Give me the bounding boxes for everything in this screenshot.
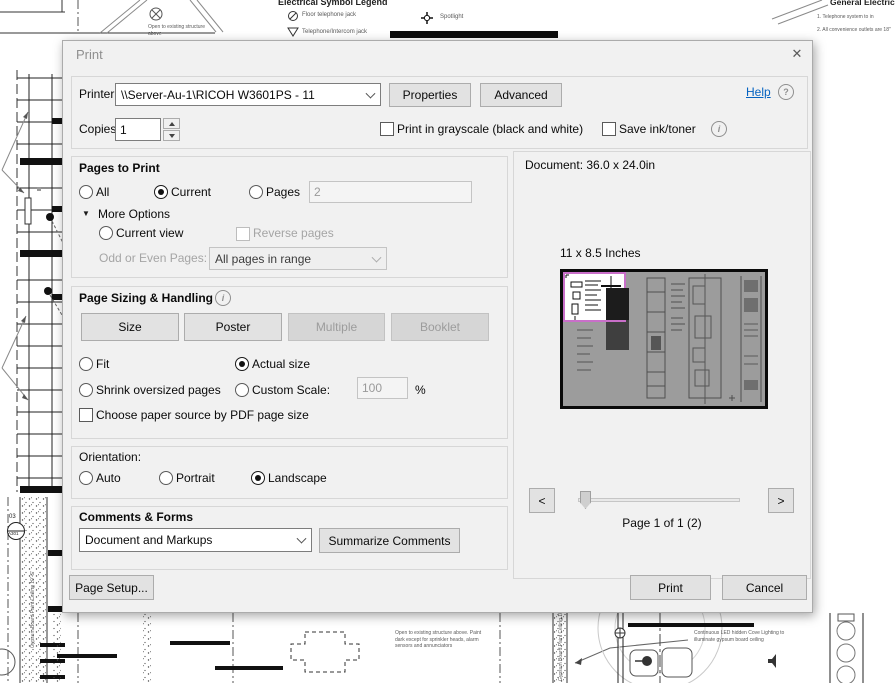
orientation-title: Orientation:: [79, 450, 141, 464]
cancel-button[interactable]: Cancel: [722, 575, 807, 600]
bg-ceiling-label: Gypsum Board Paint Ceiling 10'-6": [30, 571, 37, 648]
stepper-down-button[interactable]: [163, 130, 180, 141]
chevron-down-icon: [366, 88, 376, 98]
printer-select-value: \\Server-Au-1\RICOH W3601PS - 11: [121, 88, 315, 102]
all-radio[interactable]: [79, 185, 93, 199]
fit-radio[interactable]: [79, 357, 93, 371]
fit-label: Fit: [96, 357, 109, 371]
bg-legend-item: Telephone/Intercom jack: [302, 29, 367, 37]
print-button[interactable]: Print: [630, 575, 711, 600]
current-view-label: Current view: [116, 226, 183, 240]
chevron-down-icon: [297, 534, 307, 544]
chevron-down-icon: [372, 252, 382, 262]
page-slider-track[interactable]: [578, 498, 740, 502]
summarize-comments-button[interactable]: Summarize Comments: [319, 528, 460, 553]
screen: Electrical Symbol Legend Floor telephone…: [0, 0, 895, 683]
more-options-collapse-icon[interactable]: ▼: [82, 209, 90, 218]
pages-radio[interactable]: [249, 185, 263, 199]
comments-select[interactable]: Document and Markups: [79, 528, 312, 552]
grayscale-checkbox[interactable]: [380, 122, 394, 136]
more-options-label[interactable]: More Options: [98, 207, 170, 221]
booklet-button: Booklet: [391, 313, 489, 341]
shrink-radio[interactable]: [79, 383, 93, 397]
bg-legend-item: Spotlight: [440, 14, 463, 22]
bg-legend-title: Electrical Symbol Legend: [278, 0, 388, 7]
bg-legend-item: Floor telephone jack: [302, 12, 356, 20]
pages-range-input: 2: [309, 181, 472, 203]
comments-title: Comments & Forms: [79, 510, 193, 524]
save-ink-label: Save ink/toner: [619, 122, 696, 136]
custom-scale-radio[interactable]: [235, 383, 249, 397]
paper-size-label: 11 x 8.5 Inches: [560, 246, 641, 260]
properties-button[interactable]: Properties: [389, 83, 471, 107]
odd-even-label: Odd or Even Pages:: [99, 251, 207, 265]
dialog-title: Print: [76, 47, 103, 62]
comments-select-value: Document and Markups: [85, 533, 212, 547]
page-setup-button[interactable]: Page Setup...: [69, 575, 154, 600]
current-label: Current: [171, 185, 211, 199]
pages-label: Pages: [266, 185, 300, 199]
current-view-radio[interactable]: [99, 226, 113, 240]
custom-scale-input: 100: [357, 377, 408, 399]
arrow-up-icon: [169, 122, 175, 126]
bg-paint-note: Open to existing structure above. Paint …: [395, 630, 491, 650]
size-button[interactable]: Size: [81, 313, 179, 341]
reverse-pages-checkbox: [236, 227, 250, 241]
landscape-radio[interactable]: [251, 471, 265, 485]
all-label: All: [96, 185, 109, 199]
printer-select[interactable]: \\Server-Au-1\RICOH W3601PS - 11: [115, 83, 381, 106]
actual-size-radio[interactable]: [235, 357, 249, 371]
document-size-label: Document: 36.0 x 24.0in: [525, 158, 655, 172]
bg-section-marker-number: 03: [9, 514, 16, 522]
bg-section-marker-sheet: A301: [8, 531, 19, 537]
preview-panel: Document: 36.0 x 24.0in 11 x 8.5 Inches: [513, 151, 811, 579]
percent-label: %: [415, 383, 426, 397]
close-icon[interactable]: ✕: [787, 44, 807, 64]
shrink-label: Shrink oversized pages: [96, 383, 221, 397]
arrow-down-icon: [169, 134, 175, 138]
portrait-label: Portrait: [176, 471, 215, 485]
bg-notes-title: General Electrical N: [830, 0, 895, 7]
copies-label: Copies:: [79, 122, 120, 136]
page-slider-thumb[interactable]: [580, 491, 591, 509]
copies-stepper: [163, 118, 180, 141]
preview-page-thumbnail: [560, 269, 768, 409]
copies-input[interactable]: 1: [115, 118, 161, 141]
bg-note: 2. All convenience outlets are 18": [817, 27, 891, 34]
poster-button[interactable]: Poster: [184, 313, 282, 341]
odd-even-select-value: All pages in range: [215, 252, 311, 266]
print-dialog: Print ✕ Printer: \\Server-Au-1\RICOH W36…: [62, 40, 813, 613]
grayscale-label: Print in grayscale (black and white): [397, 122, 583, 136]
auto-radio[interactable]: [79, 471, 93, 485]
landscape-label: Landscape: [268, 471, 327, 485]
auto-label: Auto: [96, 471, 121, 485]
preview-next-button[interactable]: >: [768, 488, 794, 513]
page-status: Page 1 of 1 (2): [514, 516, 810, 530]
preview-prev-button[interactable]: <: [529, 488, 555, 513]
reverse-pages-label: Reverse pages: [253, 226, 334, 240]
bg-note: 1. Telephone system to in: [817, 14, 874, 21]
multiple-button: Multiple: [288, 313, 385, 341]
paper-source-label: Choose paper source by PDF page size: [96, 408, 309, 422]
help-link[interactable]: Help: [746, 85, 771, 99]
custom-scale-label: Custom Scale:: [252, 383, 330, 397]
pages-to-print-title: Pages to Print: [79, 161, 160, 175]
advanced-button[interactable]: Advanced: [480, 83, 562, 107]
info-icon[interactable]: i: [215, 290, 231, 306]
save-ink-checkbox[interactable]: [602, 122, 616, 136]
bg-cove-note: Continuous LED hidden Cove Lighting to i…: [694, 630, 792, 643]
stepper-up-button[interactable]: [163, 118, 180, 129]
paper-source-checkbox[interactable]: [79, 408, 93, 422]
odd-even-select: All pages in range: [209, 247, 387, 270]
help-icon[interactable]: ?: [778, 84, 794, 100]
current-radio[interactable]: [154, 185, 168, 199]
page-sizing-title: Page Sizing & Handling: [79, 291, 213, 305]
bg-ceiling-label: Gypsum Board Paint Ceiling 10'-6": [558, 604, 565, 681]
actual-size-label: Actual size: [252, 357, 310, 371]
preview-drawing: [563, 272, 765, 406]
portrait-radio[interactable]: [159, 471, 173, 485]
info-icon[interactable]: i: [711, 121, 727, 137]
printer-label: Printer:: [79, 87, 118, 101]
bg-open-note: Open to existing structure above: [148, 24, 210, 37]
